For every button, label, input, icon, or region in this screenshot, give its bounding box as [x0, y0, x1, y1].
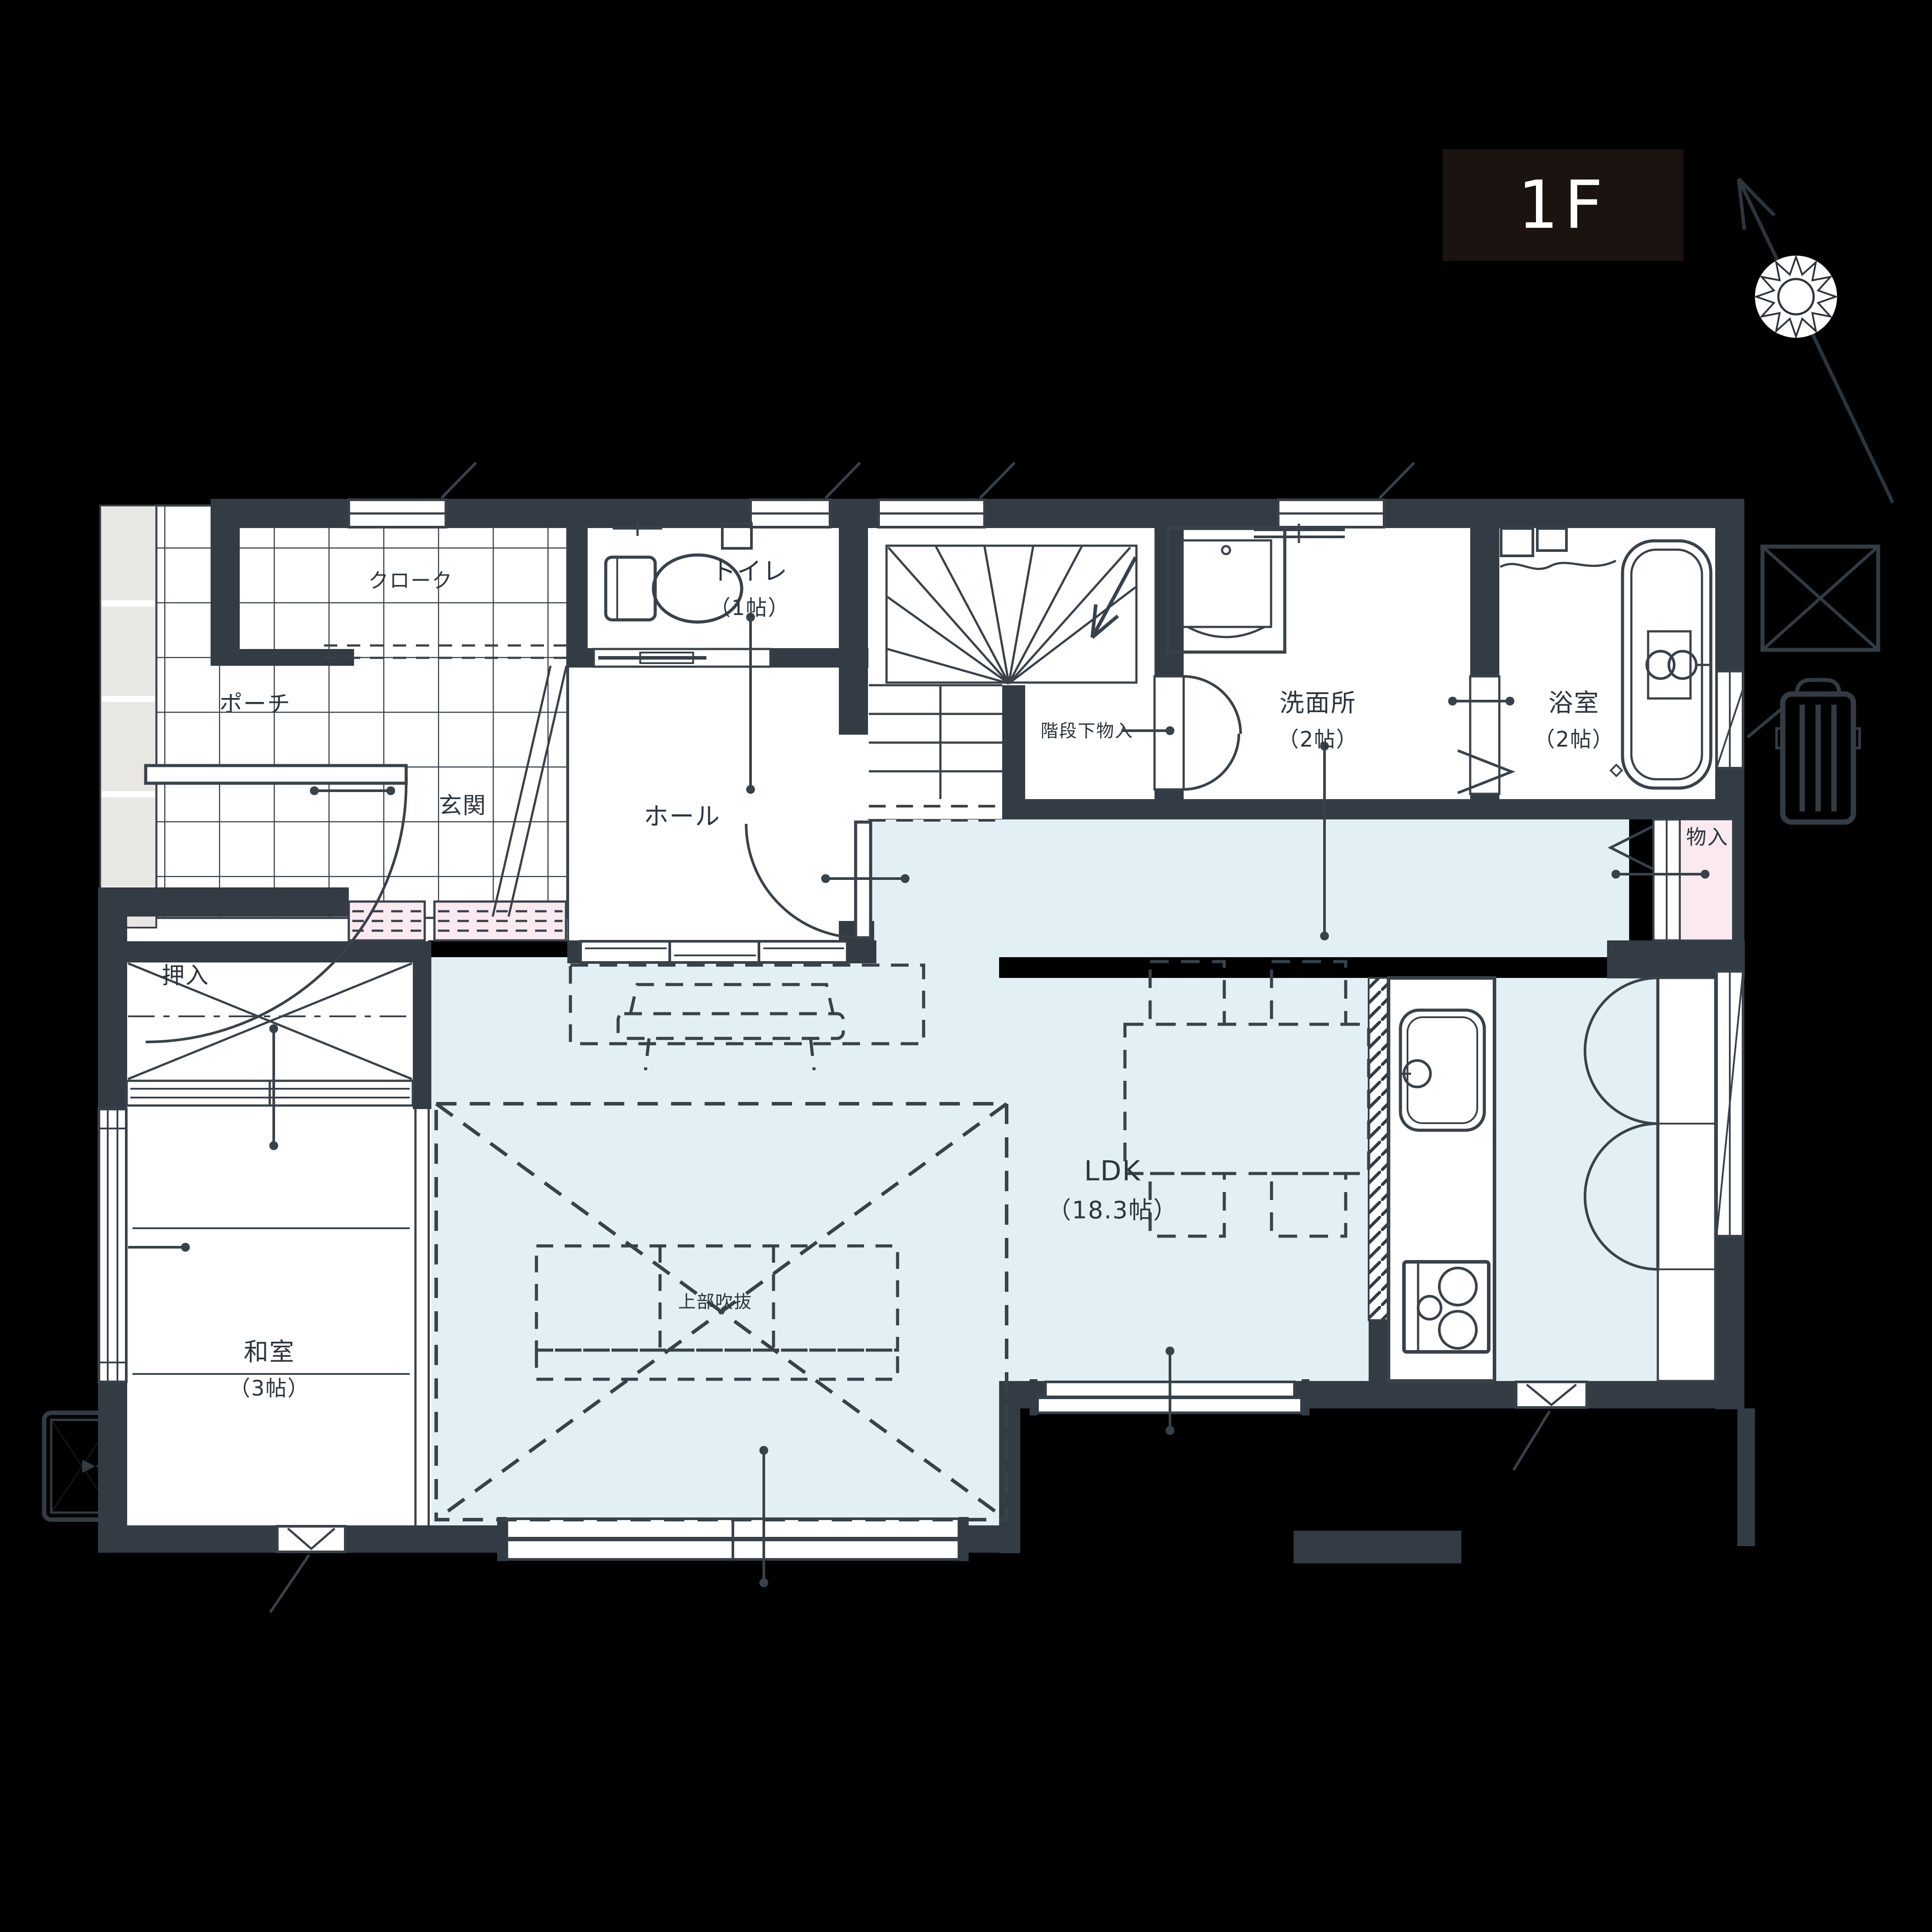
window-right-bath: [1717, 671, 1743, 768]
compass: [1739, 179, 1893, 502]
room-label-bathroom: 浴室: [1548, 683, 1600, 719]
room-label-closet: 押入: [162, 957, 209, 990]
room-label-washroom: 洗面所: [1279, 683, 1356, 719]
room-label-porch: ポーチ: [219, 686, 291, 719]
fix-window-symbol: [1762, 547, 1878, 650]
floor-badge: 1F: [1443, 149, 1683, 261]
floor-plan-drawing: [0, 0, 1932, 1932]
window-left-washitsu: [99, 1109, 126, 1382]
room-size-ldk: （18.3帖）: [1047, 1191, 1178, 1226]
exterior-step: [1294, 1531, 1461, 1563]
window-kitchen-vent: [1513, 1382, 1587, 1470]
room-size-washroom: （2帖）: [1278, 722, 1358, 753]
room-size-toilet: （1帖）: [709, 590, 790, 621]
window-right-ldk: [1717, 971, 1743, 1236]
room-label-cloak: クローク: [368, 565, 453, 594]
room-label-japanese-room: 和室: [244, 1332, 295, 1368]
window-living-south: [497, 1517, 969, 1561]
room-label-storage: 物入: [1686, 821, 1728, 850]
room-label-toilet: トイレ: [711, 552, 788, 588]
oshiire-track: [127, 1081, 413, 1106]
window-washitsu-vent: [270, 1526, 345, 1612]
room-label-hall: ホール: [644, 797, 721, 833]
porch-steps: [100, 506, 156, 928]
toilet-sliding-door: [594, 649, 770, 667]
room-size-japanese-room: （3帖）: [229, 1371, 310, 1402]
room-label-ldk: LDK: [1084, 1155, 1141, 1187]
room-label-under-stair-storage: 階段下物入: [1041, 717, 1133, 742]
under-stair-storage-floor: [1025, 685, 1155, 799]
room-label-void-above: 上部吹抜: [678, 1287, 752, 1313]
water-heater: [1747, 680, 1860, 822]
storage-door: [1653, 819, 1680, 940]
room-label-entrance: 玄関: [439, 787, 487, 820]
hall-sliding-panels: [581, 941, 847, 962]
floor-badge-label: 1F: [1517, 167, 1609, 244]
floor-plan-page: クローク トイレ （1帖） ポーチ 玄関 ホール 階段下物入 洗面所 （2帖） …: [0, 0, 1932, 1932]
entrance-mats: [349, 902, 566, 940]
room-size-bathroom: （2帖）: [1534, 722, 1615, 753]
